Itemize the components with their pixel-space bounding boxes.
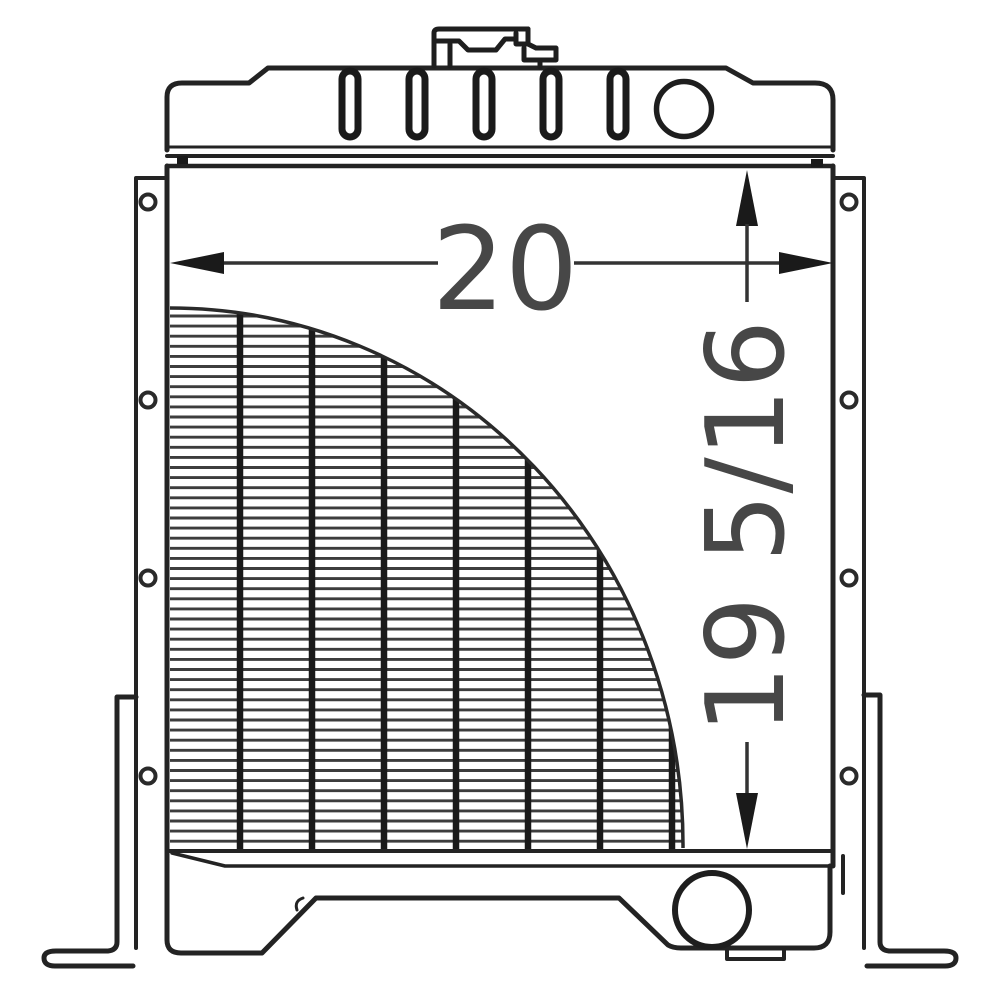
left-mounting-hole xyxy=(141,571,156,586)
right-mounting-hole xyxy=(842,571,857,586)
vent-slots xyxy=(342,71,626,137)
vent-slot xyxy=(610,71,626,137)
bottom-band-line xyxy=(172,853,833,866)
filler-cap-underside xyxy=(434,39,516,50)
right-mounting-hole xyxy=(842,393,857,408)
left-mounting-hole xyxy=(141,393,156,408)
height-dim-arrow-top xyxy=(736,170,758,226)
left-mounting-hole xyxy=(141,195,156,210)
vent-slot xyxy=(409,71,425,137)
radiator-drawing-page: 20 19 5/16 xyxy=(0,0,1000,1000)
top-tank-outline xyxy=(167,68,833,150)
top-tank xyxy=(167,68,833,166)
header-band-left-tick xyxy=(177,156,188,164)
right-mounting-hole xyxy=(842,769,857,784)
outlet-circle xyxy=(675,873,749,947)
height-dimension: 19 5/16 xyxy=(684,170,809,849)
dimensions: 20 19 5/16 xyxy=(170,170,833,849)
core-fin-lines xyxy=(170,316,690,841)
radiator-diagram: 20 19 5/16 xyxy=(0,0,1000,1000)
right-leg xyxy=(864,695,956,966)
right-mounting-hole xyxy=(842,195,857,210)
height-dimension-label: 19 5/16 xyxy=(684,320,809,734)
width-dim-arrow-left xyxy=(170,252,224,274)
filler-neck-circle xyxy=(657,82,712,137)
vent-slot xyxy=(342,71,358,137)
right-bracket xyxy=(833,178,864,948)
width-dim-arrow-right xyxy=(779,252,833,274)
left-leg xyxy=(44,697,136,966)
left-mounting-hole xyxy=(141,769,156,784)
height-dim-arrow-bottom xyxy=(736,793,758,849)
header-band-right-tick xyxy=(811,159,823,167)
vent-slot xyxy=(476,71,492,137)
bottom-seam-curl xyxy=(296,898,303,910)
filler-cap xyxy=(434,29,556,67)
width-dimension-label: 20 xyxy=(432,203,578,337)
vent-slot xyxy=(543,71,559,137)
core-grid xyxy=(170,305,690,851)
left-bracket xyxy=(136,178,167,948)
